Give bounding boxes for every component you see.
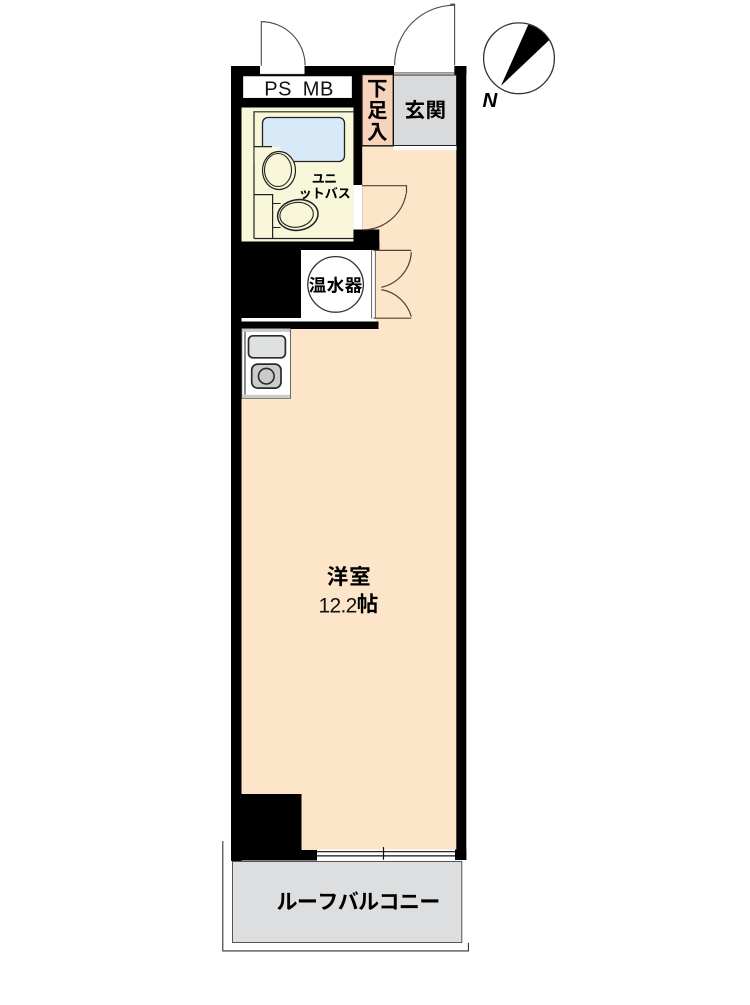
svg-text:MB: MB <box>303 78 334 100</box>
svg-text:PS: PS <box>264 78 292 100</box>
svg-text:N: N <box>483 89 499 112</box>
svg-text:12.2: 12.2 <box>319 594 357 617</box>
